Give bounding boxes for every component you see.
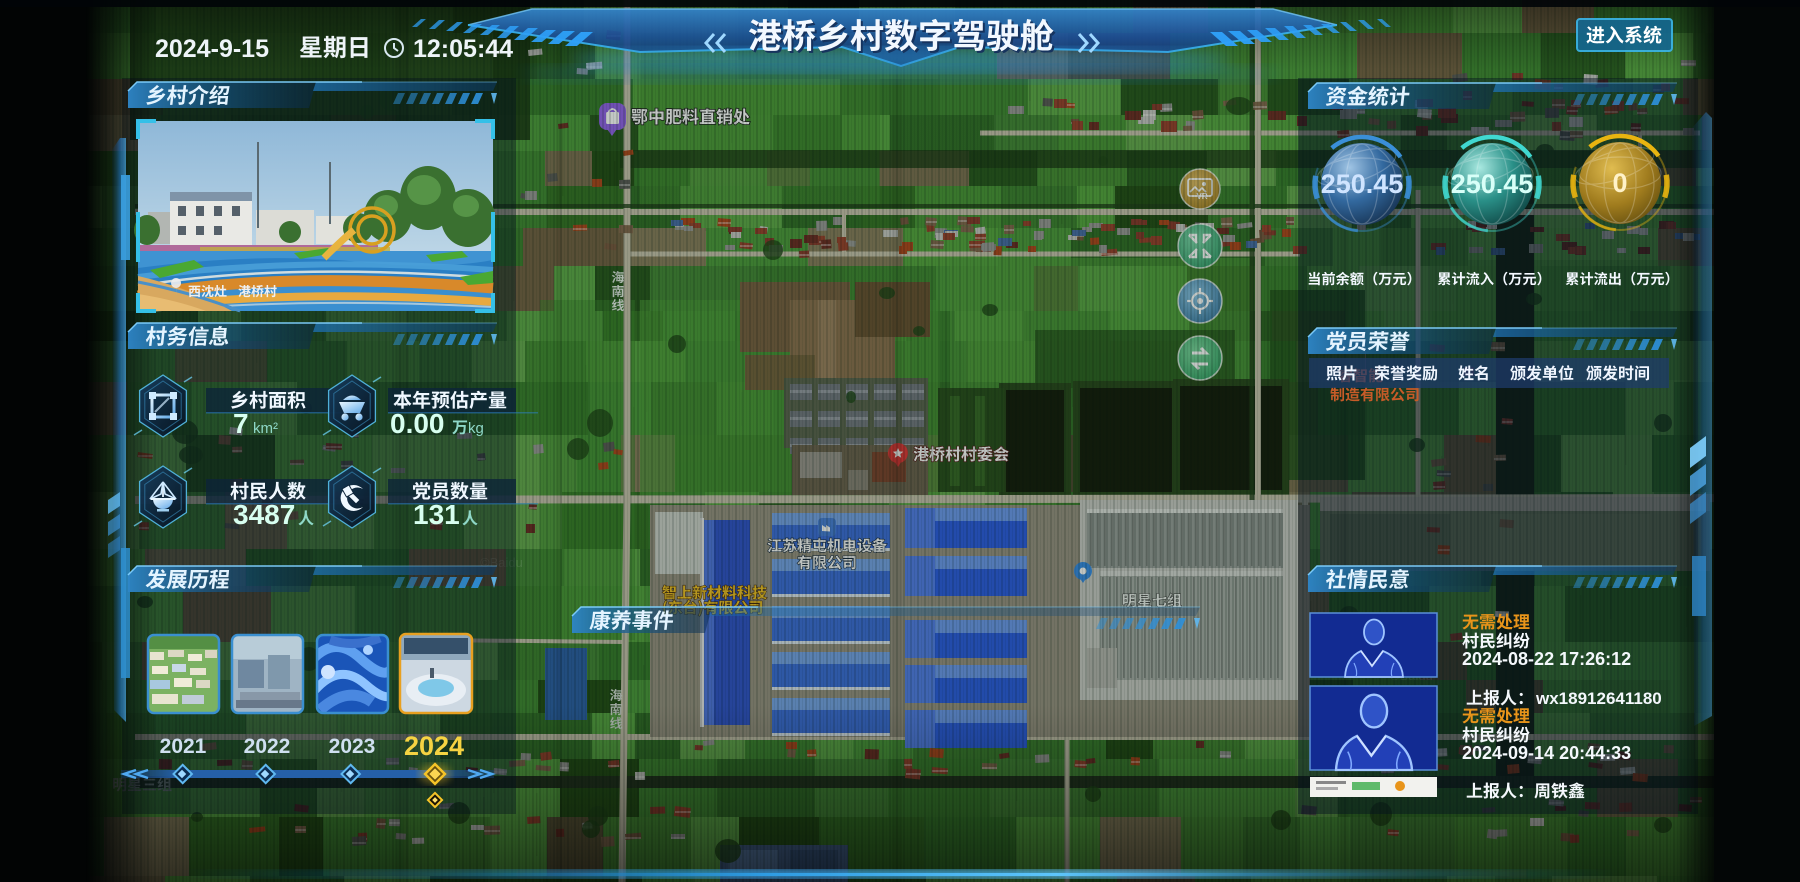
svg-text:2024-09-14 20:44:33: 2024-09-14 20:44:33	[1462, 743, 1631, 763]
svg-text:2021: 2021	[160, 735, 207, 758]
svg-text:2024-9-15: 2024-9-15	[155, 35, 269, 63]
svg-text:2024-08-22 17:26:12: 2024-08-22 17:26:12	[1462, 649, 1631, 669]
svg-text:2022: 2022	[244, 735, 291, 758]
svg-text:km²: km²	[253, 420, 278, 437]
svg-text:kg: kg	[468, 420, 484, 437]
svg-text:0: 0	[1612, 168, 1627, 198]
svg-text:7: 7	[233, 408, 249, 439]
svg-text:3487: 3487	[233, 499, 295, 530]
svg-text:2024: 2024	[404, 731, 464, 761]
svg-text:131: 131	[413, 499, 460, 530]
svg-text:wx18912641180: wx18912641180	[1535, 689, 1662, 708]
svg-text:12:05:44: 12:05:44	[413, 35, 513, 63]
svg-text:2023: 2023	[329, 735, 376, 758]
svg-text:0.00: 0.00	[390, 408, 445, 439]
svg-text:250.45: 250.45	[1451, 169, 1534, 199]
svg-text:250.45: 250.45	[1321, 169, 1404, 199]
